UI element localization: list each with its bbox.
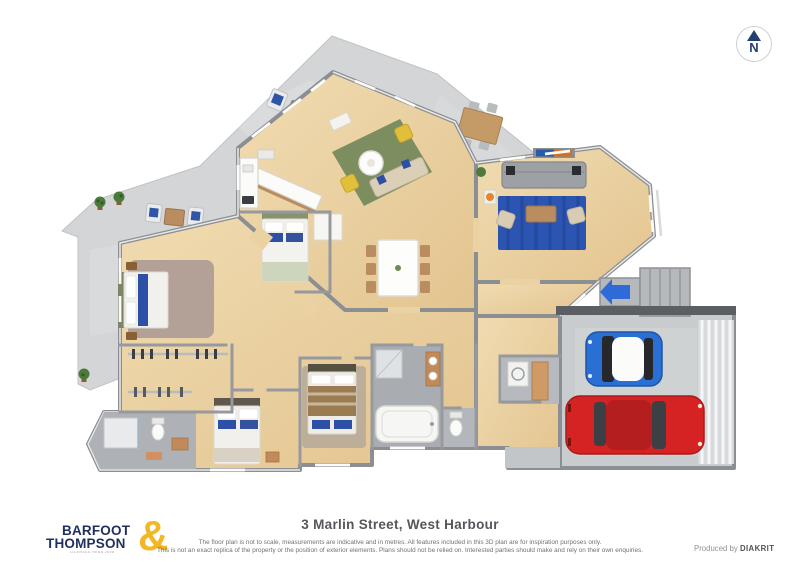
nightstand [126,262,137,270]
compass-label: N [737,40,771,55]
toilet-room [450,412,462,436]
oven [258,150,274,159]
bed3-headboard [308,364,356,372]
disclaimer-line-1: The floor plan is not to scale, measurem… [0,539,800,547]
cooktop [242,196,254,204]
indoor-plant [476,167,486,177]
disclaimer: The floor plan is not to scale, measurem… [0,539,800,555]
bath-mat [146,452,162,460]
washing-machine [508,362,528,386]
fire-glow [486,193,494,201]
dresser [266,452,279,462]
producer-credit: Produced by DIAKRIT [694,544,774,553]
wardrobe [314,214,342,240]
property-address: 3 Marlin Street, West Harbour [0,517,800,532]
porch [505,447,560,468]
north-compass: N [736,26,772,62]
master-bedroom [118,260,214,340]
kitchen-sink [243,165,253,172]
blue-throw [138,274,148,326]
blue-car [586,332,662,386]
toilet [152,424,164,440]
laundry-cabinet [532,362,548,400]
credit-prefix: Produced by [694,544,738,553]
vanity [172,438,188,450]
red-car [566,396,704,454]
toilet2 [450,420,462,436]
coffee-table [526,206,556,222]
disclaimer-line-2: This is not an exact replica of the prop… [0,547,800,555]
bed4-headboard [214,398,260,406]
toilet-tank [152,418,164,424]
floorplan-image [0,0,800,584]
nightstand [126,332,137,340]
floorplan-page: N & BARFOOT THOMPSON LICENSED REAA 2008 … [0,0,800,584]
balcony-rail [657,190,661,236]
bedroom-3 [302,364,366,448]
dining-area [366,240,430,296]
shower [104,418,138,448]
credit-brand: DIAKRIT [740,544,774,553]
